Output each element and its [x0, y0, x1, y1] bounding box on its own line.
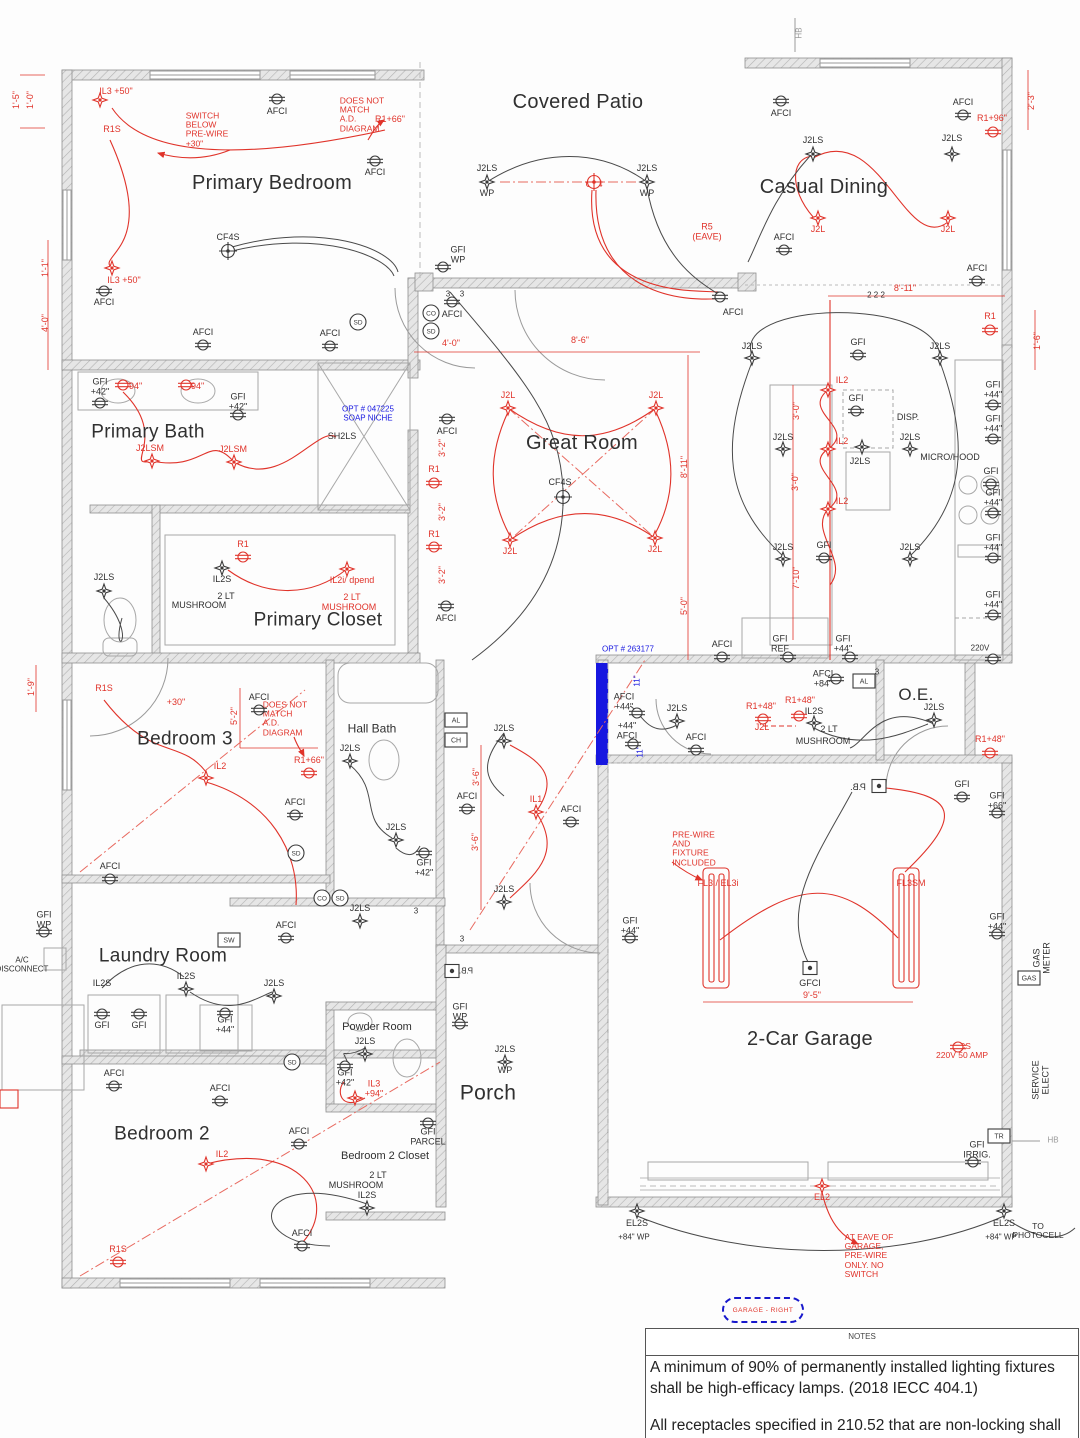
blue-option-wall	[596, 663, 608, 765]
note-line-2: All receptacles specified in 210.52 that…	[650, 1416, 1074, 1438]
floor-plan-canvas: Primary BedroomCovered PatioCasual Dinin…	[0, 0, 1080, 1438]
floor-plan-drawing	[0, 0, 1080, 1438]
sheet-badge: GARAGE - RIGHT	[722, 1297, 804, 1323]
black-wires	[102, 156, 1075, 1251]
note-line-1: A minimum of 90% of permanently installe…	[650, 1358, 1074, 1400]
walls	[62, 58, 1012, 1288]
dimension-lines	[20, 70, 1035, 1002]
notes-box: NOTES A minimum of 90% of permanently in…	[645, 1328, 1079, 1438]
windows	[63, 59, 1011, 1287]
doors	[90, 288, 948, 953]
sheet-badge-label: GARAGE - RIGHT	[733, 1307, 794, 1314]
notes-title: NOTES	[646, 1329, 1078, 1341]
